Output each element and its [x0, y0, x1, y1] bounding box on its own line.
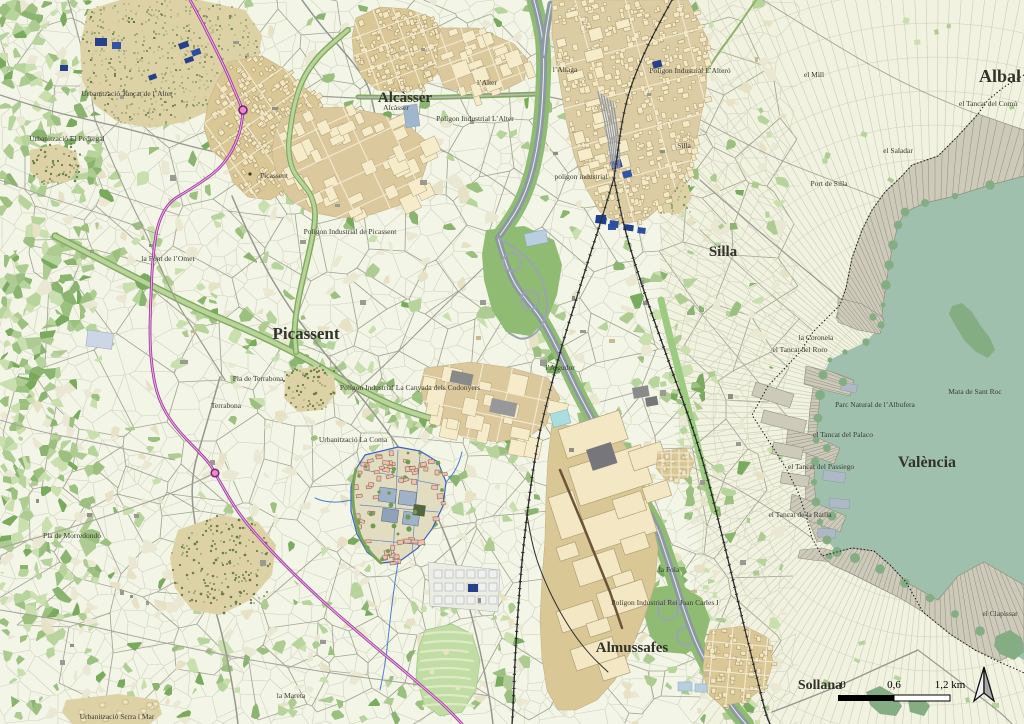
svg-text:Terrabona: Terrabona: [211, 401, 242, 410]
svg-text:Picassent: Picassent: [260, 171, 289, 180]
svg-text:Urbanització Serra i Mar: Urbanització Serra i Mar: [80, 712, 155, 721]
svg-text:Sollana: Sollana: [798, 678, 842, 693]
svg-text:el Clapissar: el Clapissar: [982, 609, 1018, 618]
svg-text:0: 0: [840, 679, 846, 691]
svg-text:Mata de Sant Roc: Mata de Sant Roc: [948, 387, 1002, 396]
svg-text:Silla: Silla: [709, 244, 738, 260]
svg-text:Polígon Industrial L’Alteró: Polígon Industrial L’Alteró: [649, 66, 731, 75]
svg-text:Parc Natural de l’Albufera: Parc Natural de l’Albufera: [835, 400, 915, 409]
svg-text:València: València: [898, 454, 956, 471]
svg-text:Alcàsser: Alcàsser: [383, 103, 409, 112]
svg-text:poligon industrial: poligon industrial: [554, 172, 607, 181]
svg-text:Polígon Industrial Rei Joan Ca: Polígon Industrial Rei Joan Carles I: [611, 598, 719, 607]
svg-text:el Mill: el Mill: [804, 70, 824, 79]
svg-text:Silla: Silla: [677, 141, 691, 150]
svg-text:el Tancat del Comú: el Tancat del Comú: [959, 99, 1018, 108]
svg-text:Urbanització El Pedregal: Urbanització El Pedregal: [29, 134, 104, 143]
svg-text:0,6: 0,6: [887, 679, 901, 691]
svg-text:Albal: Albal: [979, 66, 1021, 86]
svg-text:l’Aliaga: l’Aliaga: [553, 65, 578, 74]
svg-text:la Fola: la Fola: [659, 565, 680, 574]
svg-text:el Tancat del Roro: el Tancat del Roro: [773, 345, 828, 354]
svg-text:la Font de l’Omet: la Font de l’Omet: [141, 254, 195, 263]
svg-text:el Tancat del Palaco: el Tancat del Palaco: [813, 430, 873, 439]
svg-text:Picassent: Picassent: [272, 324, 339, 343]
svg-text:Pla de Morredondo: Pla de Morredondo: [43, 531, 101, 540]
svg-text:1,2 km: 1,2 km: [935, 679, 966, 691]
svg-text:l’Algudor: l’Algudor: [545, 363, 575, 372]
svg-text:l’Alter: l’Alter: [477, 78, 497, 87]
svg-text:Polígon Industrial de Picassen: Polígon Industrial de Picassent: [304, 227, 398, 236]
svg-text:el Saladar: el Saladar: [883, 146, 913, 155]
svg-text:Almussafes: Almussafes: [596, 640, 669, 656]
svg-text:la Coronela: la Coronela: [799, 333, 834, 342]
svg-text:Pla de Terrabona: Pla de Terrabona: [233, 374, 284, 383]
svg-text:el Tancat del Passiego: el Tancat del Passiego: [788, 462, 854, 471]
svg-text:el Tancat de la Ratlla: el Tancat de la Ratlla: [768, 510, 832, 519]
svg-text:la Mareta: la Mareta: [277, 691, 306, 700]
svg-text:Polígon Industrial La Canyada: Polígon Industrial La Canyada dels Codon…: [340, 383, 480, 392]
svg-text:Urbanització La Coma: Urbanització La Coma: [319, 435, 388, 444]
svg-text:Port de Silla: Port de Silla: [810, 179, 848, 188]
svg-text:Polígon Industrial L’Alter: Polígon Industrial L’Alter: [436, 114, 514, 123]
svg-text:Urbanització Tancat de l’Alter: Urbanització Tancat de l’Alter: [81, 89, 173, 98]
